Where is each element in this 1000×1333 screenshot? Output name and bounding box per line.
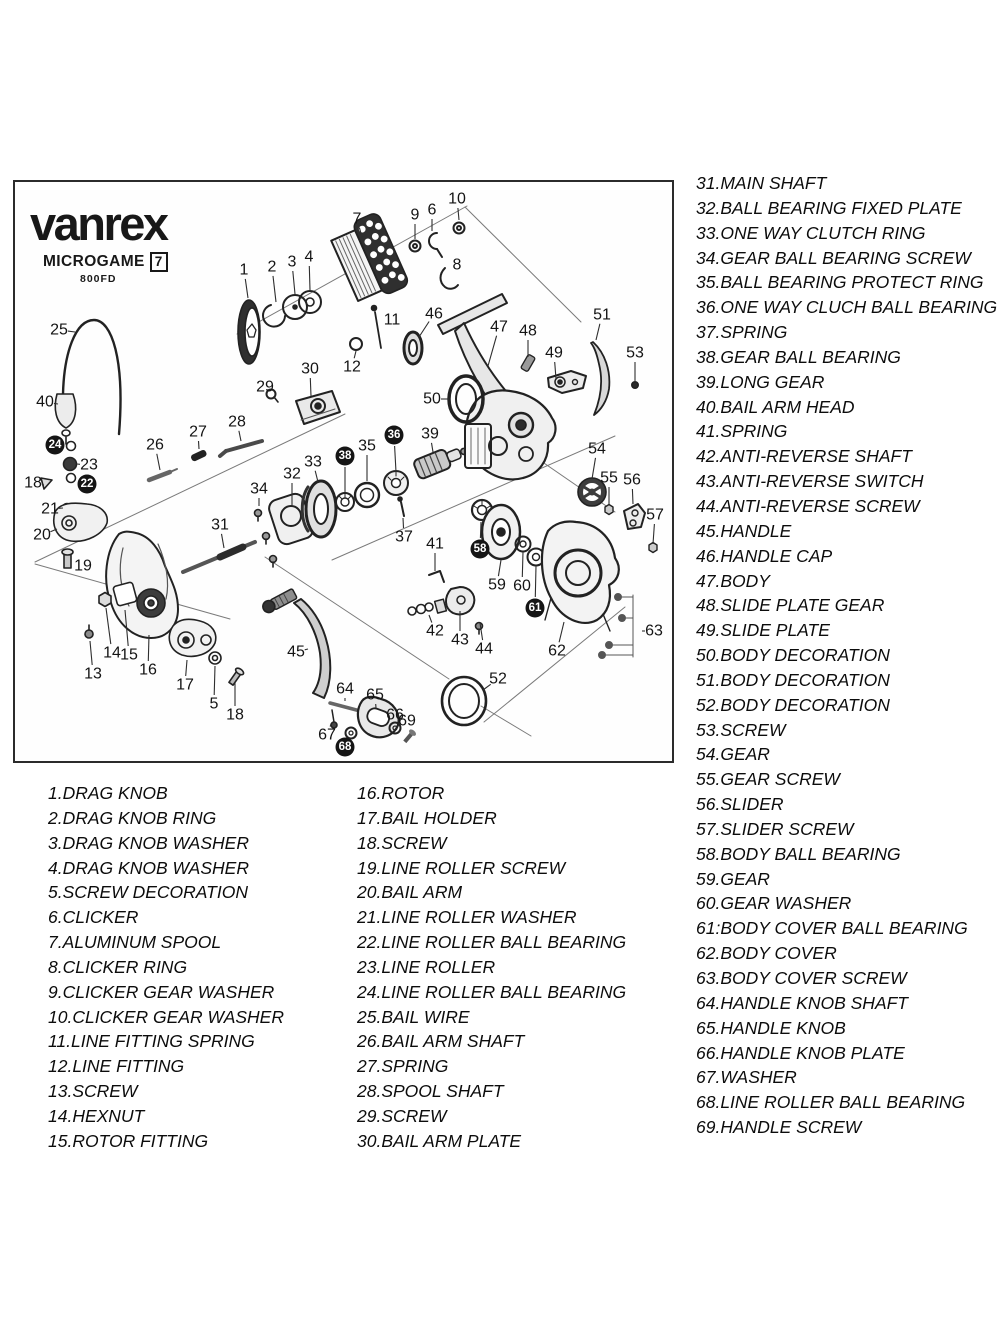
- brand-logo: vanrex: [30, 203, 168, 245]
- callout-number-41: 41: [426, 536, 444, 553]
- callout-leader-46: [419, 322, 429, 338]
- part-list-item: 17.BAIL HOLDER: [357, 806, 626, 831]
- part-list-item: 2.DRAG KNOB RING: [48, 806, 284, 831]
- part-list-item: 26.BAIL ARM SHAFT: [357, 1029, 626, 1054]
- callout-number-18: 18: [24, 475, 42, 492]
- part-list-item: 67.WASHER: [696, 1065, 997, 1090]
- callout-leader-15: [125, 610, 128, 646]
- callout-number-44: 44: [475, 641, 493, 658]
- series-name: MICROGAME: [43, 253, 145, 271]
- callout-leader-3: [293, 271, 295, 294]
- part-list-item: 16.ROTOR: [357, 781, 626, 806]
- callout-number-49: 49: [545, 345, 563, 362]
- part-list-item: 37.SPRING: [696, 320, 997, 345]
- callout-leader-17: [186, 660, 187, 676]
- part-list-item: 52.BODY DECORATION: [696, 693, 997, 718]
- parts-list-column-3: 31.MAIN SHAFT32.BALL BEARING FIXED PLATE…: [696, 171, 997, 1140]
- callout-number-42: 42: [426, 623, 444, 640]
- part-list-item: 50.BODY DECORATION: [696, 643, 997, 668]
- callout-number-28: 28: [228, 414, 246, 431]
- callout-number-15: 15: [120, 647, 138, 664]
- callout-number-45: 45: [287, 644, 305, 661]
- part-list-item: 57.SLIDER SCREW: [696, 817, 997, 842]
- callout-leader-56: [632, 489, 633, 504]
- callout-number-60: 60: [513, 578, 531, 595]
- callout-leader-33: [315, 471, 318, 482]
- callout-number-34: 34: [250, 481, 268, 498]
- callout-number-1: 1: [240, 262, 249, 279]
- part-list-item: 64.HANDLE KNOB SHAFT: [696, 991, 997, 1016]
- part-list-item: 58.BODY BALL BEARING: [696, 842, 997, 867]
- page: 1234567891011121314151617181920212223242…: [0, 0, 1000, 1333]
- part-list-item: 24.LINE ROLLER BALL BEARING: [357, 980, 626, 1005]
- callout-number-65: 65: [366, 687, 384, 704]
- callout-leader-27: [199, 441, 200, 449]
- callout-number-14: 14: [103, 645, 121, 662]
- callout-leader-37: [403, 518, 404, 528]
- callout-number-63: 63: [645, 623, 663, 640]
- callout-number-69: 69: [398, 713, 416, 730]
- callout-number-2: 2: [268, 259, 277, 276]
- callout-number-21: 21: [41, 501, 59, 518]
- callout-number-29: 29: [256, 379, 274, 396]
- callout-number-22: 22: [81, 478, 94, 490]
- callout-leader-44: [480, 623, 483, 640]
- callout-leader-40: [54, 403, 58, 404]
- callout-number-67: 67: [318, 727, 336, 744]
- part-list-item: 56.SLIDER: [696, 792, 997, 817]
- callout-leader-7: [359, 228, 362, 237]
- part-list-item: 39.LONG GEAR: [696, 370, 997, 395]
- callout-number-35: 35: [358, 438, 376, 455]
- callout-leader-26: [157, 454, 160, 470]
- part-list-item: 61:BODY COVER BALL BEARING: [696, 916, 997, 941]
- callout-number-37: 37: [395, 529, 413, 546]
- callout-number-55: 55: [600, 470, 618, 487]
- callout-number-7: 7: [353, 211, 362, 228]
- callout-leader-51: [596, 324, 600, 340]
- part-list-item: 41.SPRING: [696, 419, 997, 444]
- part-list-item: 65.HANDLE KNOB: [696, 1016, 997, 1041]
- callout-number-32: 32: [283, 466, 301, 483]
- callout-number-17: 17: [176, 677, 194, 694]
- callout-number-13: 13: [84, 666, 102, 683]
- callout-number-48: 48: [519, 323, 537, 340]
- callout-leader-42: [429, 615, 432, 623]
- callout-number-25: 25: [50, 322, 68, 339]
- model-number: 800FD: [80, 273, 168, 285]
- part-list-item: 68.LINE ROLLER BALL BEARING: [696, 1090, 997, 1115]
- callout-number-54: 54: [588, 441, 606, 458]
- callout-number-38: 38: [339, 450, 352, 462]
- part-list-item: 69.HANDLE SCREW: [696, 1115, 997, 1140]
- callout-number-10: 10: [448, 191, 466, 208]
- part-list-item: 10.CLICKER GEAR WASHER: [48, 1005, 284, 1030]
- part-list-item: 5.SCREW DECORATION: [48, 880, 284, 905]
- callout-number-33: 33: [304, 454, 322, 471]
- part-list-item: 32.BALL BEARING FIXED PLATE: [696, 196, 997, 221]
- callout-number-51: 51: [593, 307, 611, 324]
- part-list-item: 1.DRAG KNOB: [48, 781, 284, 806]
- part-list-item: 6.CLICKER: [48, 905, 284, 930]
- part-list-item: 63.BODY COVER SCREW: [696, 966, 997, 991]
- callout-number-46: 46: [425, 306, 443, 323]
- callout-leader-4: [309, 266, 310, 290]
- callout-number-5: 5: [210, 696, 219, 713]
- part-list-item: 38.GEAR BALL BEARING: [696, 345, 997, 370]
- parts-list-column-2: 16.ROTOR17.BAIL HOLDER18.SCREW19.LINE RO…: [357, 781, 626, 1154]
- callout-leader-16: [148, 635, 149, 661]
- brand-block: vanrex MICROGAME 7 800FD: [30, 203, 168, 285]
- callout-number-16: 16: [139, 662, 157, 679]
- callout-number-24: 24: [49, 439, 62, 451]
- callout-number-53: 53: [626, 345, 644, 362]
- callout-leader-47: [488, 336, 497, 366]
- callout-number-23: 23: [80, 457, 98, 474]
- part-list-item: 28.SPOOL SHAFT: [357, 1079, 626, 1104]
- part-list-item: 31.MAIN SHAFT: [696, 171, 997, 196]
- part-list-item: 4.DRAG KNOB WASHER: [48, 856, 284, 881]
- callout-number-27: 27: [189, 424, 207, 441]
- part-list-item: 9.CLICKER GEAR WASHER: [48, 980, 284, 1005]
- callout-number-68: 68: [339, 741, 352, 753]
- part-list-item: 13.SCREW: [48, 1079, 284, 1104]
- part-list-item: 35.BALL BEARING PROTECT RING: [696, 270, 997, 295]
- callout-leader-39: [432, 443, 434, 452]
- callout-number-52: 52: [489, 671, 507, 688]
- part-list-item: 62.BODY COVER: [696, 941, 997, 966]
- part-list-item: 18.SCREW: [357, 831, 626, 856]
- part-list-item: 12.LINE FITTING: [48, 1054, 284, 1079]
- callout-leader-60: [522, 552, 523, 577]
- callout-number-8: 8: [453, 257, 462, 274]
- part-list-item: 53.SCREW: [696, 718, 997, 743]
- callout-number-9: 9: [411, 207, 420, 224]
- callout-leader-1: [245, 279, 248, 298]
- part-list-item: 30.BAIL ARM PLATE: [357, 1129, 626, 1154]
- part-list-item: 33.ONE WAY CLUTCH RING: [696, 221, 997, 246]
- callout-number-64: 64: [336, 681, 354, 698]
- callout-leader-10: [458, 208, 459, 220]
- part-list-item: 46.HANDLE CAP: [696, 544, 997, 569]
- callout-number-4: 4: [305, 249, 314, 266]
- callout-leader-58: [480, 522, 481, 538]
- callout-leader-62: [559, 622, 564, 642]
- part-list-item: 20.BAIL ARM: [357, 880, 626, 905]
- callout-number-50: 50: [423, 391, 441, 408]
- callout-number-12: 12: [343, 359, 361, 376]
- part-list-item: 23.LINE ROLLER: [357, 955, 626, 980]
- callout-leader-31: [222, 534, 225, 548]
- callout-number-26: 26: [146, 437, 164, 454]
- part-list-item: 8.CLICKER RING: [48, 955, 284, 980]
- callout-leader-49: [555, 362, 556, 379]
- callout-number-30: 30: [301, 361, 319, 378]
- callout-number-56: 56: [623, 472, 641, 489]
- callout-number-31: 31: [211, 517, 229, 534]
- part-list-item: 66.HANDLE KNOB PLATE: [696, 1041, 997, 1066]
- brand-series-row: MICROGAME 7: [43, 252, 168, 272]
- diagram-panel: 1234567891011121314151617181920212223242…: [13, 180, 674, 763]
- series-number-badge: 7: [150, 252, 168, 272]
- callout-leader-14: [106, 608, 111, 644]
- callout-leader-59: [498, 560, 501, 576]
- callout-leader-57: [653, 524, 654, 544]
- part-list-item: 55.GEAR SCREW: [696, 767, 997, 792]
- callout-leader-13: [90, 641, 92, 665]
- callout-leader-54: [592, 458, 596, 479]
- callout-number-40: 40: [36, 394, 54, 411]
- callout-number-39: 39: [421, 426, 439, 443]
- callout-leader-45: [305, 649, 308, 650]
- part-list-item: 45.HANDLE: [696, 519, 997, 544]
- part-list-item: 48.SLIDE PLATE GEAR: [696, 593, 997, 618]
- part-list-item: 59.GEAR: [696, 867, 997, 892]
- callout-number-61: 61: [529, 602, 542, 614]
- part-list-item: 51.BODY DECORATION: [696, 668, 997, 693]
- part-list-item: 21.LINE ROLLER WASHER: [357, 905, 626, 930]
- callout-number-43: 43: [451, 632, 469, 649]
- callout-leader-30: [310, 378, 311, 396]
- part-list-item: 60.GEAR WASHER: [696, 891, 997, 916]
- part-list-item: 44.ANTI-REVERSE SCREW: [696, 494, 997, 519]
- callout-number-3: 3: [288, 254, 297, 271]
- part-list-item: 7.ALUMINUM SPOOL: [48, 930, 284, 955]
- callout-number-62: 62: [548, 643, 566, 660]
- callout-number-36: 36: [388, 429, 401, 441]
- parts-list-column-1: 1.DRAG KNOB2.DRAG KNOB RING3.DRAG KNOB W…: [48, 781, 284, 1154]
- part-list-item: 22.LINE ROLLER BALL BEARING: [357, 930, 626, 955]
- callout-leader-28: [239, 431, 241, 441]
- part-list-item: 40.BAIL ARM HEAD: [696, 395, 997, 420]
- callout-number-20: 20: [33, 527, 51, 544]
- part-list-item: 3.DRAG KNOB WASHER: [48, 831, 284, 856]
- callout-leader-5: [214, 666, 215, 695]
- part-list-item: 34.GEAR BALL BEARING SCREW: [696, 246, 997, 271]
- part-list-item: 15.ROTOR FITTING: [48, 1129, 284, 1154]
- callout-number-58: 58: [474, 543, 487, 555]
- callout-number-19: 19: [74, 558, 92, 575]
- callout-number-59: 59: [488, 577, 506, 594]
- callout-leader-12: [354, 351, 356, 358]
- callout-number-57: 57: [646, 507, 664, 524]
- callout-number-18: 18: [226, 707, 244, 724]
- part-list-item: 49.SLIDE PLATE: [696, 618, 997, 643]
- part-list-item: 29.SCREW: [357, 1104, 626, 1129]
- part-list-item: 42.ANTI-REVERSE SHAFT: [696, 444, 997, 469]
- callout-leader-20: [50, 529, 57, 532]
- part-list-item: 25.BAIL WIRE: [357, 1005, 626, 1030]
- callout-leader-61: [535, 566, 536, 597]
- callout-number-11: 11: [384, 312, 401, 329]
- callout-leader-25: [68, 331, 75, 332]
- part-list-item: 19.LINE ROLLER SCREW: [357, 856, 626, 881]
- part-list-item: 27.SPRING: [357, 1054, 626, 1079]
- part-list-item: 54.GEAR: [696, 742, 997, 767]
- part-list-item: 47.BODY: [696, 569, 997, 594]
- callout-number-6: 6: [428, 202, 437, 219]
- callout-number-47: 47: [490, 319, 508, 336]
- part-list-item: 14.HEXNUT: [48, 1104, 284, 1129]
- callout-leader-2: [273, 276, 276, 302]
- callout-leader-36: [395, 446, 396, 472]
- part-list-item: 11.LINE FITTING SPRING: [48, 1029, 284, 1054]
- part-list-item: 43.ANTI-REVERSE SWITCH: [696, 469, 997, 494]
- part-list-item: 36.ONE WAY CLUCH BALL BEARING: [696, 295, 997, 320]
